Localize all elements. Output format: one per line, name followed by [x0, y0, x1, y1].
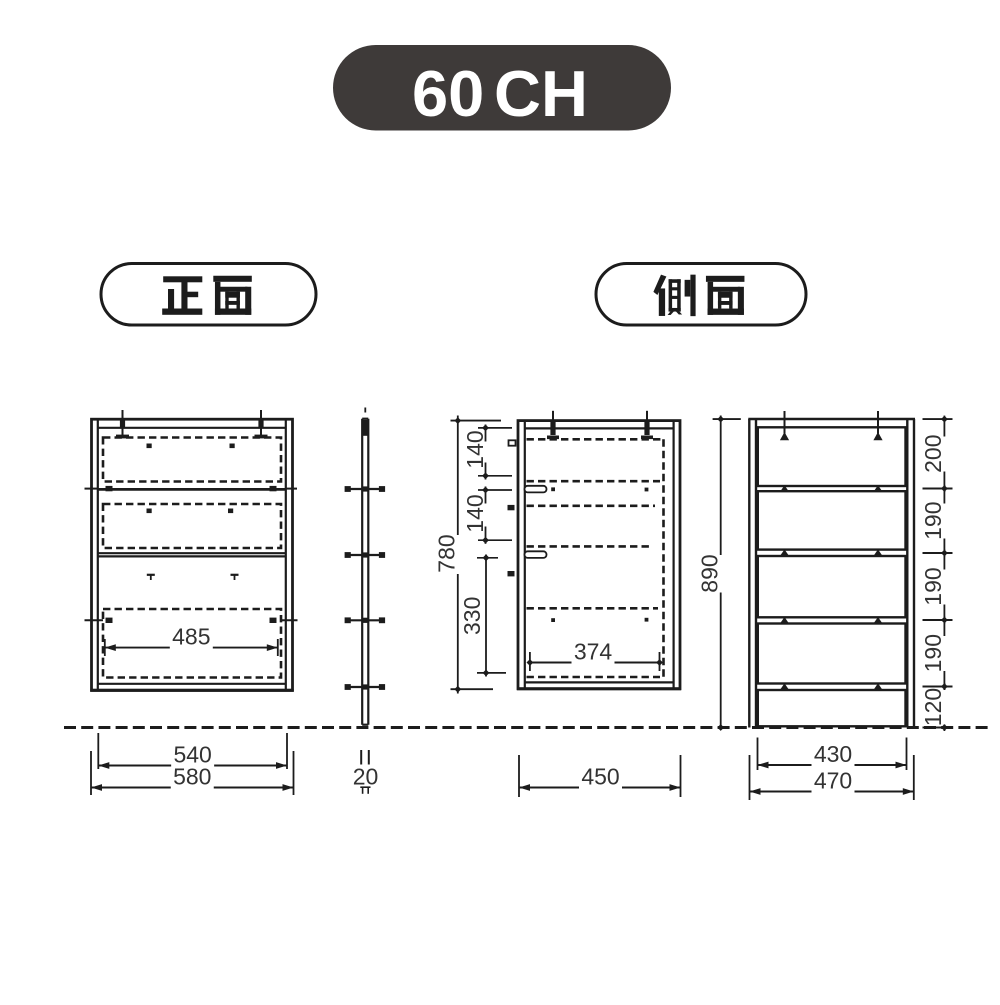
svg-text:374: 374 — [574, 639, 613, 665]
svg-text:485: 485 — [172, 624, 210, 650]
svg-text:200: 200 — [920, 435, 946, 473]
svg-text:470: 470 — [814, 768, 852, 794]
svg-text:140: 140 — [462, 430, 488, 468]
svg-text:190: 190 — [920, 567, 946, 605]
svg-text:330: 330 — [459, 597, 485, 635]
svg-text:60: 60 — [412, 57, 484, 130]
svg-text:120: 120 — [920, 688, 946, 726]
svg-text:890: 890 — [697, 554, 723, 592]
svg-text:190: 190 — [920, 634, 946, 672]
svg-text:580: 580 — [173, 764, 211, 790]
svg-text:780: 780 — [433, 534, 459, 572]
svg-text:450: 450 — [581, 764, 619, 790]
svg-text:190: 190 — [920, 502, 946, 540]
svg-text:430: 430 — [814, 741, 852, 767]
svg-text:20: 20 — [353, 764, 379, 790]
svg-text:CH: CH — [494, 57, 588, 130]
svg-text:140: 140 — [462, 494, 488, 532]
